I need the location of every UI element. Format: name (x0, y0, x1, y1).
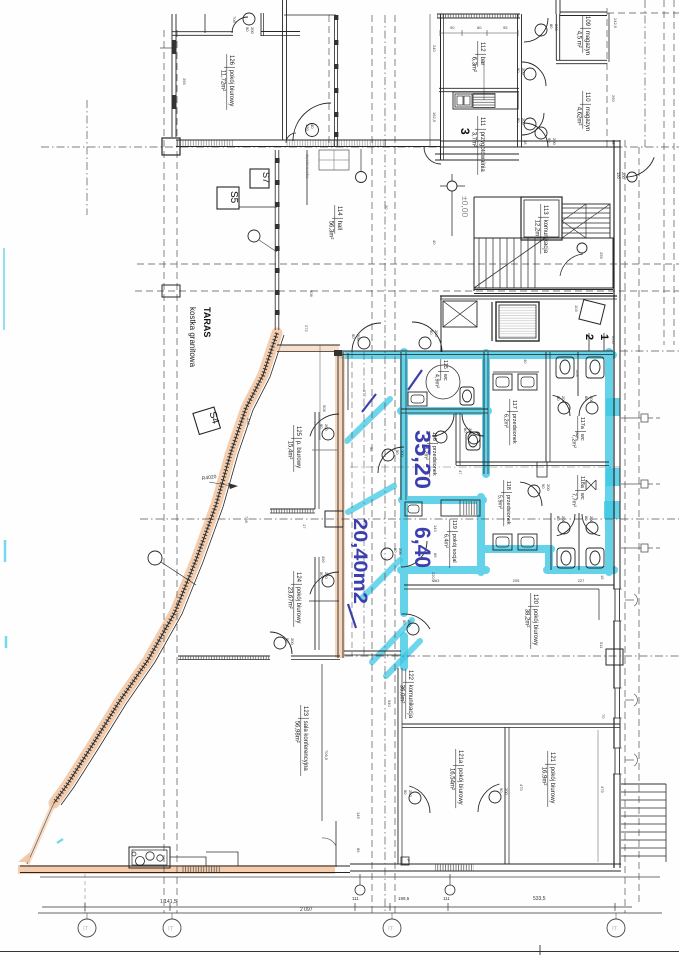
svg-text:wycieraczka: wycieraczka (305, 154, 310, 179)
svg-text:95: 95 (503, 25, 508, 30)
svg-text:S7: S7 (261, 172, 271, 183)
svg-text:4,62m²: 4,62m² (576, 107, 582, 126)
svg-text:90: 90 (285, 638, 290, 643)
svg-text:479: 479 (600, 786, 605, 793)
svg-text:263: 263 (433, 578, 440, 583)
svg-text:200: 200 (561, 396, 566, 403)
svg-text:36,0m²: 36,0m² (399, 685, 405, 704)
svg-text:38,2m²: 38,2m² (524, 609, 530, 628)
svg-text:przygotowalnia: przygotowalnia (479, 132, 485, 173)
svg-text:240: 240 (432, 45, 437, 52)
svg-text:111: 111 (479, 117, 485, 127)
svg-text:4,9m²: 4,9m² (434, 374, 440, 388)
svg-text:199,5: 199,5 (398, 896, 410, 901)
svg-text:16,9m²: 16,9m² (541, 767, 547, 786)
svg-text:38: 38 (523, 140, 528, 145)
svg-text:16,54m²: 16,54m² (449, 768, 455, 790)
svg-text:90: 90 (395, 450, 400, 455)
svg-text:komunikacja: komunikacja (542, 220, 548, 254)
svg-text:111: 111 (352, 896, 359, 901)
svg-text:90: 90 (369, 447, 374, 452)
svg-text:126: 126 (228, 55, 234, 66)
svg-text:124: 124 (295, 572, 301, 583)
svg-text:200: 200 (324, 424, 329, 431)
svg-text:80: 80 (584, 396, 589, 401)
svg-text:IT: IT (168, 927, 174, 933)
svg-text:114: 114 (336, 206, 342, 216)
svg-text:23,67m²: 23,67m² (287, 587, 293, 609)
svg-text:hall: hall (336, 221, 342, 230)
svg-text:90: 90 (319, 424, 324, 429)
svg-text:przedsionek: przedsionek (511, 414, 517, 444)
svg-text:80: 80 (584, 516, 589, 521)
svg-text:90: 90 (319, 572, 324, 577)
svg-text:103: 103 (574, 305, 579, 312)
svg-text:90: 90 (547, 138, 552, 143)
svg-text:90: 90 (402, 620, 407, 625)
svg-text:wc: wc (579, 492, 585, 500)
svg-text:708: 708 (232, 16, 237, 23)
svg-text:120: 120 (532, 594, 538, 605)
svg-text:200: 200 (504, 788, 509, 795)
svg-text:p. biurowy: p. biurowy (295, 441, 301, 468)
svg-text:1 141,5: 1 141,5 (160, 899, 177, 905)
svg-text:200: 200 (408, 790, 413, 797)
svg-text:200: 200 (589, 516, 594, 523)
svg-text:40: 40 (432, 240, 437, 245)
svg-text:232: 232 (246, 418, 251, 425)
svg-text:120: 120 (616, 172, 621, 179)
svg-text:758: 758 (244, 516, 249, 523)
svg-text:200: 200 (290, 638, 295, 645)
svg-text:80: 80 (477, 25, 482, 30)
svg-text:±0,00: ±0,00 (460, 196, 470, 217)
svg-text:56,98m²: 56,98m² (294, 721, 300, 743)
svg-text:80: 80 (516, 118, 521, 123)
svg-text:47: 47 (458, 470, 463, 475)
svg-text:magazyn: magazyn (584, 31, 590, 55)
svg-text:pokój biurowy: pokój biurowy (295, 587, 301, 624)
svg-text:118: 118 (505, 481, 511, 490)
svg-text:200: 200 (546, 484, 551, 491)
svg-text:182,5: 182,5 (432, 112, 437, 123)
svg-text:706,5: 706,5 (324, 750, 329, 761)
svg-text:90: 90 (245, 27, 250, 32)
svg-text:200: 200 (356, 334, 361, 341)
svg-text:200: 200 (434, 330, 439, 337)
svg-text:6,2m²: 6,2m² (503, 414, 509, 428)
svg-text:121: 121 (549, 752, 555, 763)
svg-text:80: 80 (556, 516, 561, 521)
svg-text:kostka granitowa: kostka granitowa (188, 307, 197, 368)
svg-text:90: 90 (393, 548, 398, 553)
svg-text:magazyn: magazyn (584, 107, 590, 131)
svg-text:20: 20 (384, 205, 389, 210)
svg-text:15,4m²: 15,4m² (287, 441, 293, 460)
svg-text:6,40: 6,40 (410, 527, 435, 568)
svg-text:200: 200 (621, 172, 626, 179)
svg-text:90: 90 (541, 484, 546, 489)
svg-text:122: 122 (407, 670, 413, 681)
svg-text:119: 119 (451, 520, 457, 529)
svg-text:508: 508 (322, 405, 327, 412)
svg-text:IT: IT (83, 927, 89, 933)
svg-text:200: 200 (400, 450, 405, 457)
svg-text:200: 200 (521, 68, 526, 75)
svg-text:80: 80 (556, 396, 561, 401)
svg-text:109: 109 (584, 16, 590, 27)
svg-text:2 097: 2 097 (300, 907, 313, 913)
svg-text:117: 117 (511, 400, 517, 409)
svg-text:11,72m²: 11,72m² (220, 70, 226, 92)
svg-text:5,9m²: 5,9m² (497, 495, 503, 509)
svg-text:90: 90 (351, 334, 356, 339)
svg-text:7,7m²: 7,7m² (571, 493, 577, 507)
svg-text:89: 89 (356, 848, 361, 853)
svg-text:250: 250 (611, 95, 616, 102)
svg-text:komunikacja: komunikacja (407, 685, 413, 719)
svg-text:490: 490 (321, 556, 326, 563)
svg-text:145: 145 (356, 812, 361, 819)
svg-text:TARAS: TARAS (202, 307, 212, 337)
svg-text:115: 115 (442, 360, 448, 369)
svg-text:200: 200 (398, 548, 403, 555)
svg-text:267: 267 (575, 432, 580, 439)
svg-text:90: 90 (403, 790, 408, 795)
svg-text:205: 205 (513, 578, 520, 583)
svg-text:90: 90 (499, 788, 504, 793)
svg-text:P: P (406, 859, 411, 862)
svg-text:20,40m2: 20,40m2 (349, 518, 370, 604)
svg-text:940: 940 (387, 700, 392, 707)
svg-text:112: 112 (479, 42, 485, 52)
svg-text:19: 19 (600, 575, 605, 580)
svg-text:pokój biurowy: pokój biurowy (532, 609, 538, 646)
svg-text:227: 227 (578, 578, 585, 583)
svg-text:S5: S5 (228, 191, 239, 204)
svg-text:IT: IT (612, 927, 618, 933)
svg-text:511: 511 (599, 642, 604, 649)
svg-text:4,5 m²: 4,5 m² (576, 31, 582, 48)
svg-text:200: 200 (589, 396, 594, 403)
svg-text:80: 80 (549, 24, 554, 29)
svg-text:242,5: 242,5 (613, 18, 618, 29)
svg-text:40: 40 (310, 124, 315, 129)
svg-text:40: 40 (523, 359, 528, 364)
svg-text:pokój biurowy: pokój biurowy (549, 767, 555, 804)
svg-text:533,5: 533,5 (533, 896, 546, 902)
svg-text:pokój biurowy: pokój biurowy (457, 768, 463, 805)
svg-text:123: 123 (302, 706, 308, 717)
svg-text:6,4m²: 6,4m² (443, 534, 449, 548)
svg-text:120: 120 (305, 124, 310, 131)
svg-text:pokój biurowy: pokój biurowy (228, 70, 234, 107)
svg-text:wc: wc (442, 373, 448, 381)
svg-text:90: 90 (429, 330, 434, 335)
svg-text:70: 70 (601, 714, 606, 719)
svg-text:272: 272 (304, 325, 309, 332)
svg-text:17: 17 (302, 524, 307, 529)
svg-text:117a: 117a (579, 417, 585, 430)
svg-text:259: 259 (599, 252, 604, 259)
svg-text:113: 113 (542, 205, 548, 215)
svg-text:111: 111 (443, 896, 450, 901)
svg-text:35,20: 35,20 (410, 430, 435, 489)
svg-text:200: 200 (521, 118, 526, 125)
svg-text:200: 200 (407, 620, 412, 627)
svg-text:90: 90 (516, 68, 521, 73)
svg-text:200: 200 (552, 138, 557, 145)
svg-text:209: 209 (575, 370, 580, 377)
svg-text:110: 110 (584, 92, 590, 102)
svg-text:przedsionek: przedsionek (505, 495, 511, 525)
svg-text:sala konferencyjna: sala konferencyjna (302, 721, 308, 772)
svg-text:200: 200 (561, 516, 566, 523)
svg-text:56,3m²: 56,3m² (328, 221, 334, 240)
svg-text:277: 277 (362, 390, 367, 397)
svg-text:200: 200 (250, 27, 255, 34)
svg-text:3: 3 (458, 128, 472, 135)
svg-text:IT: IT (388, 927, 394, 933)
svg-text:pokój socjal: pokój socjal (451, 534, 457, 563)
svg-text:470: 470 (519, 784, 524, 791)
svg-text:118a: 118a (579, 476, 585, 489)
svg-text:200: 200 (324, 572, 329, 579)
svg-text:90: 90 (450, 25, 455, 30)
svg-text:365: 365 (182, 78, 187, 85)
svg-text:125: 125 (295, 426, 301, 437)
svg-text:12,2m²: 12,2m² (534, 220, 540, 239)
svg-text:6,3m²: 6,3m² (471, 57, 477, 72)
svg-text:121a: 121a (457, 750, 463, 764)
svg-text:908: 908 (309, 290, 314, 297)
